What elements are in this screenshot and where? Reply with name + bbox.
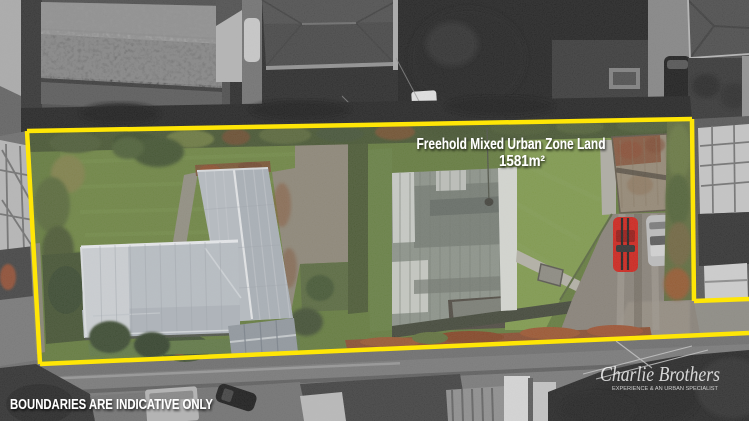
svg-text:BOUNDARIES ARE INDICATIVE ONLY: BOUNDARIES ARE INDICATIVE ONLY — [10, 397, 213, 413]
svg-text:Charlie Brothers: Charlie Brothers — [600, 362, 720, 386]
svg-text:EXPERIENCE & AN URBAN SPECIALI: EXPERIENCE & AN URBAN SPECIALIST — [612, 386, 719, 392]
svg-text:1581m²: 1581m² — [499, 153, 545, 170]
svg-text:Freehold Mixed Urban Zone Land: Freehold Mixed Urban Zone Land — [417, 136, 606, 153]
